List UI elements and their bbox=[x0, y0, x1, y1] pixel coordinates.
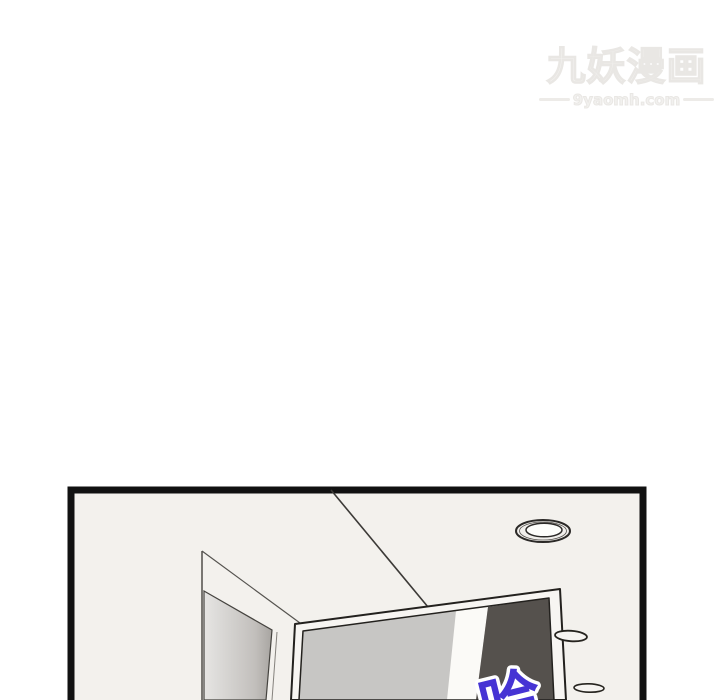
ceiling-light-bulb bbox=[526, 523, 562, 537]
wall-handle-lower bbox=[574, 683, 604, 692]
comic-page: 九妖漫画 9yaomh.com bbox=[0, 0, 720, 700]
ceiling-light bbox=[516, 520, 570, 542]
comic-panel-artwork: 哈 bbox=[0, 0, 720, 700]
